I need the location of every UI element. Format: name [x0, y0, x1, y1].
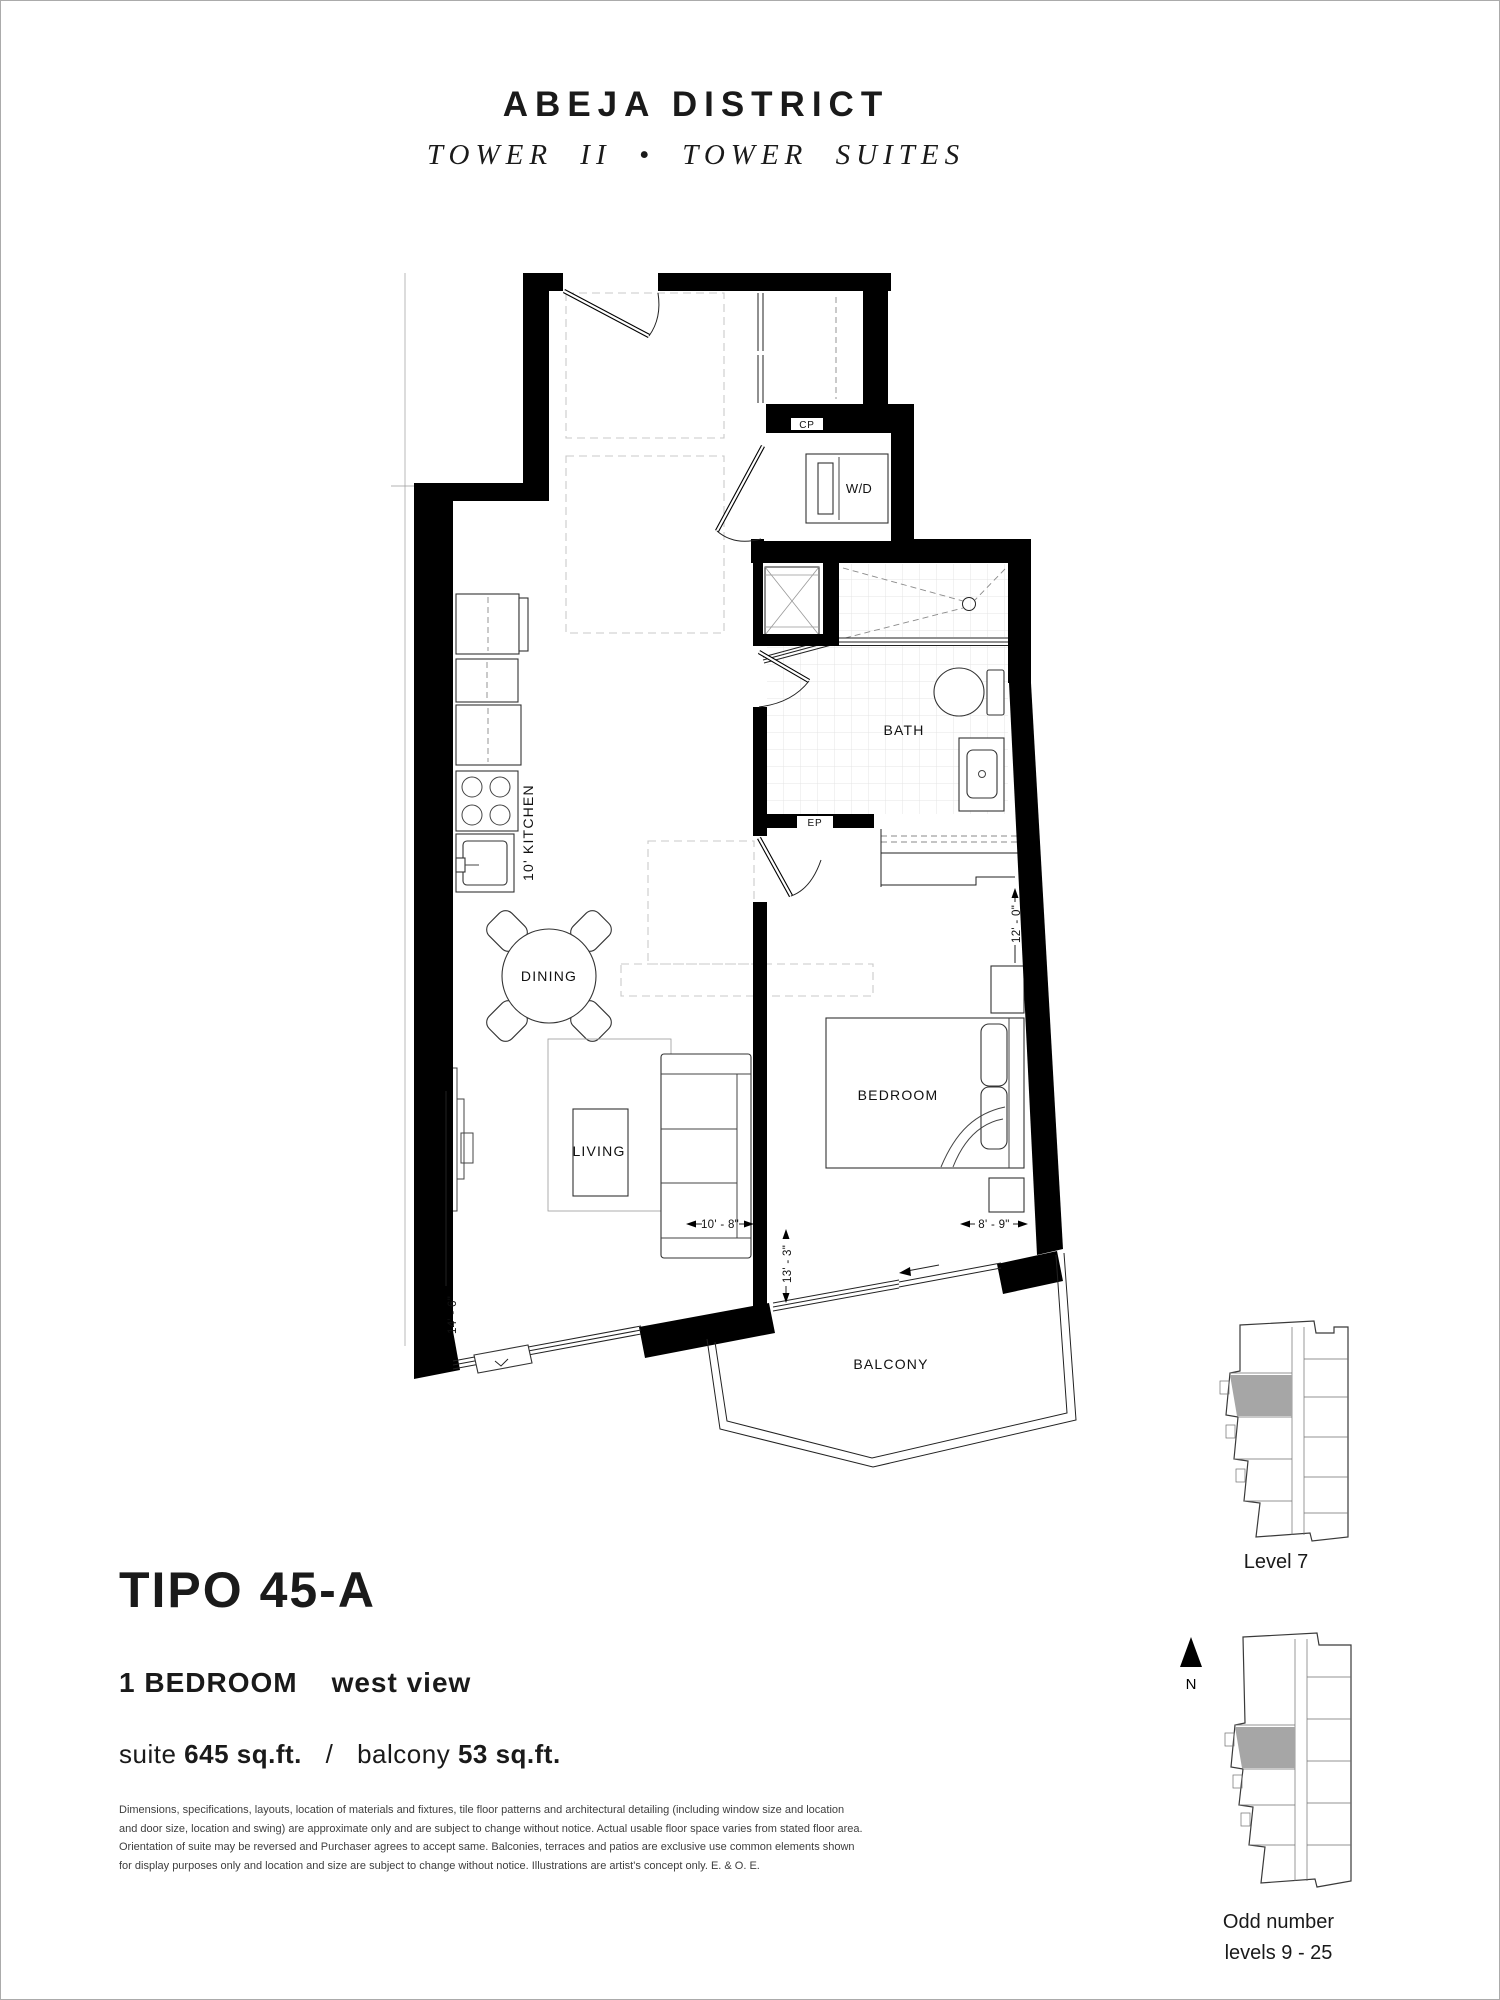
- bedroom-label: BEDROOM: [858, 1087, 939, 1103]
- highlighted-unit: [1235, 1727, 1295, 1768]
- keyplan-odd-levels-label: Odd number levels 9 - 25: [1166, 1907, 1391, 1969]
- floorplan-sheet: ABEJA DISTRICT TOWER II • TOWER SUITES: [0, 0, 1500, 2000]
- dim-bedroom-width: 8' - 9": [978, 1219, 1009, 1231]
- kitchen-label: 10' KITCHEN: [520, 784, 536, 881]
- shaft: [765, 567, 819, 635]
- suite-type-line: 1 BEDROOMwest view: [119, 1667, 471, 1699]
- living-label: LIVING: [572, 1143, 625, 1159]
- disclaimer-line: and door size, location and swing) are a…: [119, 1820, 863, 1839]
- floor-plan: 14' - 6" 10' - 8" 8' - 9" 13' - 3" 12' -…: [351, 211, 1091, 1481]
- odd-levels-line2: levels 9 - 25: [1166, 1938, 1391, 1969]
- bedroom-count: 1 BEDROOM: [119, 1667, 298, 1698]
- bedroom-closet: [881, 829, 1019, 887]
- north-label: N: [1186, 1676, 1197, 1693]
- electrical-panel-label: EP: [808, 818, 823, 829]
- bedroom-door: [759, 838, 821, 896]
- highlighted-unit: [1230, 1375, 1292, 1416]
- keyplan-odd-levels: [1199, 1629, 1359, 1899]
- washer-dryer-label: W/D: [846, 481, 872, 496]
- bath-vanity: [959, 738, 1004, 811]
- keyplan-level-7: [1196, 1319, 1356, 1547]
- odd-levels-line1: Odd number: [1166, 1907, 1391, 1938]
- kitchen-appliances: [456, 594, 528, 892]
- disclaimer-line: Orientation of suite may be reversed and…: [119, 1838, 863, 1857]
- bath-label: BATH: [883, 722, 924, 738]
- entry-door: [564, 291, 659, 336]
- suite-area-line: suite 645 sq.ft. / balcony 53 sq.ft.: [119, 1739, 561, 1770]
- balcony-slider-door: [899, 1263, 1001, 1287]
- closet-label: CP: [799, 420, 815, 431]
- balcony-area-value: 53 sq.ft.: [458, 1739, 561, 1769]
- dim-bedroom-depth: 12' - 0": [1011, 905, 1023, 943]
- entry-closet: [758, 293, 836, 403]
- page-title: ABEJA DISTRICT: [296, 85, 1096, 125]
- dim-left-wall: 14' - 6": [447, 1296, 459, 1334]
- disclaimer-line: Dimensions, specifications, layouts, loc…: [119, 1801, 863, 1820]
- suite-area-value: 645 sq.ft.: [184, 1739, 302, 1769]
- view-direction: west view: [332, 1667, 472, 1698]
- page-subtitle: TOWER II • TOWER SUITES: [246, 139, 1146, 172]
- balcony-area-label: balcony: [357, 1739, 450, 1769]
- plan-name: TIPO 45-A: [119, 1561, 376, 1619]
- disclaimer-line: for display purposes only and location a…: [119, 1857, 863, 1876]
- dim-living-width: 10' - 8": [701, 1219, 739, 1231]
- area-divider: /: [326, 1739, 334, 1769]
- dim-living-depth: 13' - 3": [782, 1245, 794, 1283]
- dining-label: DINING: [521, 968, 577, 984]
- balcony-label: BALCONY: [853, 1356, 928, 1372]
- keyplan-level-7-label: Level 7: [1186, 1551, 1366, 1574]
- legal-disclaimer: Dimensions, specifications, layouts, loc…: [119, 1801, 863, 1875]
- toilet: [934, 668, 1004, 716]
- suite-area-label: suite: [119, 1739, 176, 1769]
